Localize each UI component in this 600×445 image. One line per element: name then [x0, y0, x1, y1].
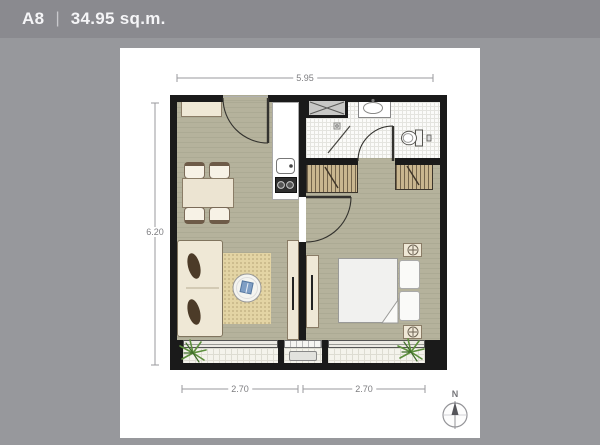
ac-louver-door [284, 340, 322, 348]
bed [338, 258, 398, 323]
unit-code-label: A8 [22, 9, 45, 29]
wall-bathroom-right-seg [395, 158, 440, 165]
area-rug [223, 253, 271, 324]
wall-balcony-corner-right [425, 340, 440, 363]
shoe-cabinet [181, 101, 222, 117]
nightstand [403, 243, 422, 257]
floor-plan-card: 5.95 6.20 2.70 2.70 N [120, 48, 480, 438]
pillow [399, 291, 420, 321]
cooktop [275, 177, 297, 193]
sliding-door-living [183, 340, 278, 348]
ac-condenser-unit [289, 351, 317, 361]
compass-north-label: N [452, 389, 459, 399]
bathroom-vanity [358, 98, 391, 118]
balcony-floor-left [177, 348, 278, 363]
wall-balcony-corner-left [177, 340, 183, 363]
wall-living-bedroom-upper [299, 102, 306, 197]
tv-bedroom [311, 275, 313, 310]
dimension-left-label: 6.20 [143, 227, 167, 237]
nightstand [403, 325, 422, 339]
wardrobe-right [395, 162, 433, 190]
tv-living [292, 277, 294, 310]
service-shaft [306, 98, 348, 118]
wall-bathroom-left-seg [306, 158, 358, 165]
dimension-bottom-right-label: 2.70 [352, 384, 376, 394]
entry-door-opening [223, 95, 268, 102]
dining-table [182, 178, 234, 208]
dimension-bottom-left-label: 2.70 [228, 384, 252, 394]
dining-chair [184, 162, 205, 179]
wall-living-bedroom-lower [299, 242, 306, 340]
title-divider: | [56, 10, 60, 28]
dining-chair [184, 207, 205, 224]
dining-chair [209, 162, 230, 179]
wall-ac-stub-right [322, 340, 328, 363]
kitchen-sink [276, 158, 295, 174]
pillow [399, 260, 420, 289]
wall-ac-stub-left [278, 340, 284, 363]
sofa [177, 240, 223, 337]
wardrobe-left [306, 162, 358, 193]
compass-north-icon [443, 401, 467, 429]
dimension-top-label: 5.95 [293, 73, 317, 83]
dining-chair [209, 207, 230, 224]
unit-area-label: 34.95 sq.m. [71, 9, 166, 29]
sliding-door-bedroom [328, 340, 425, 348]
balcony-floor-right [328, 348, 425, 363]
title-bar: A8 | 34.95 sq.m. [0, 0, 600, 38]
